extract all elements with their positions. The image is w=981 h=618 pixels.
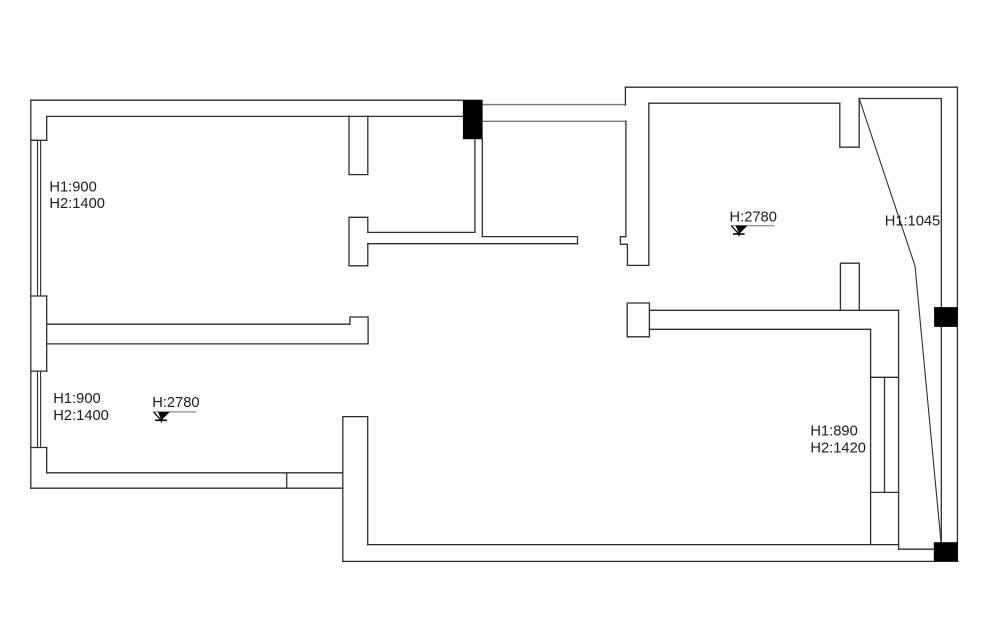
svg-text:H2:1400: H2:1400	[53, 408, 109, 424]
svg-text:H1:1045: H1:1045	[885, 213, 941, 229]
svg-text:H1:890: H1:890	[810, 424, 857, 440]
svg-text:H:2780: H:2780	[152, 395, 199, 411]
svg-text:H:2780: H:2780	[730, 210, 777, 226]
svg-text:H1:900: H1:900	[53, 391, 100, 407]
svg-text:H1:900: H1:900	[49, 179, 96, 195]
svg-text:H2:1420: H2:1420	[810, 440, 866, 456]
svg-text:H2:1400: H2:1400	[49, 196, 105, 212]
